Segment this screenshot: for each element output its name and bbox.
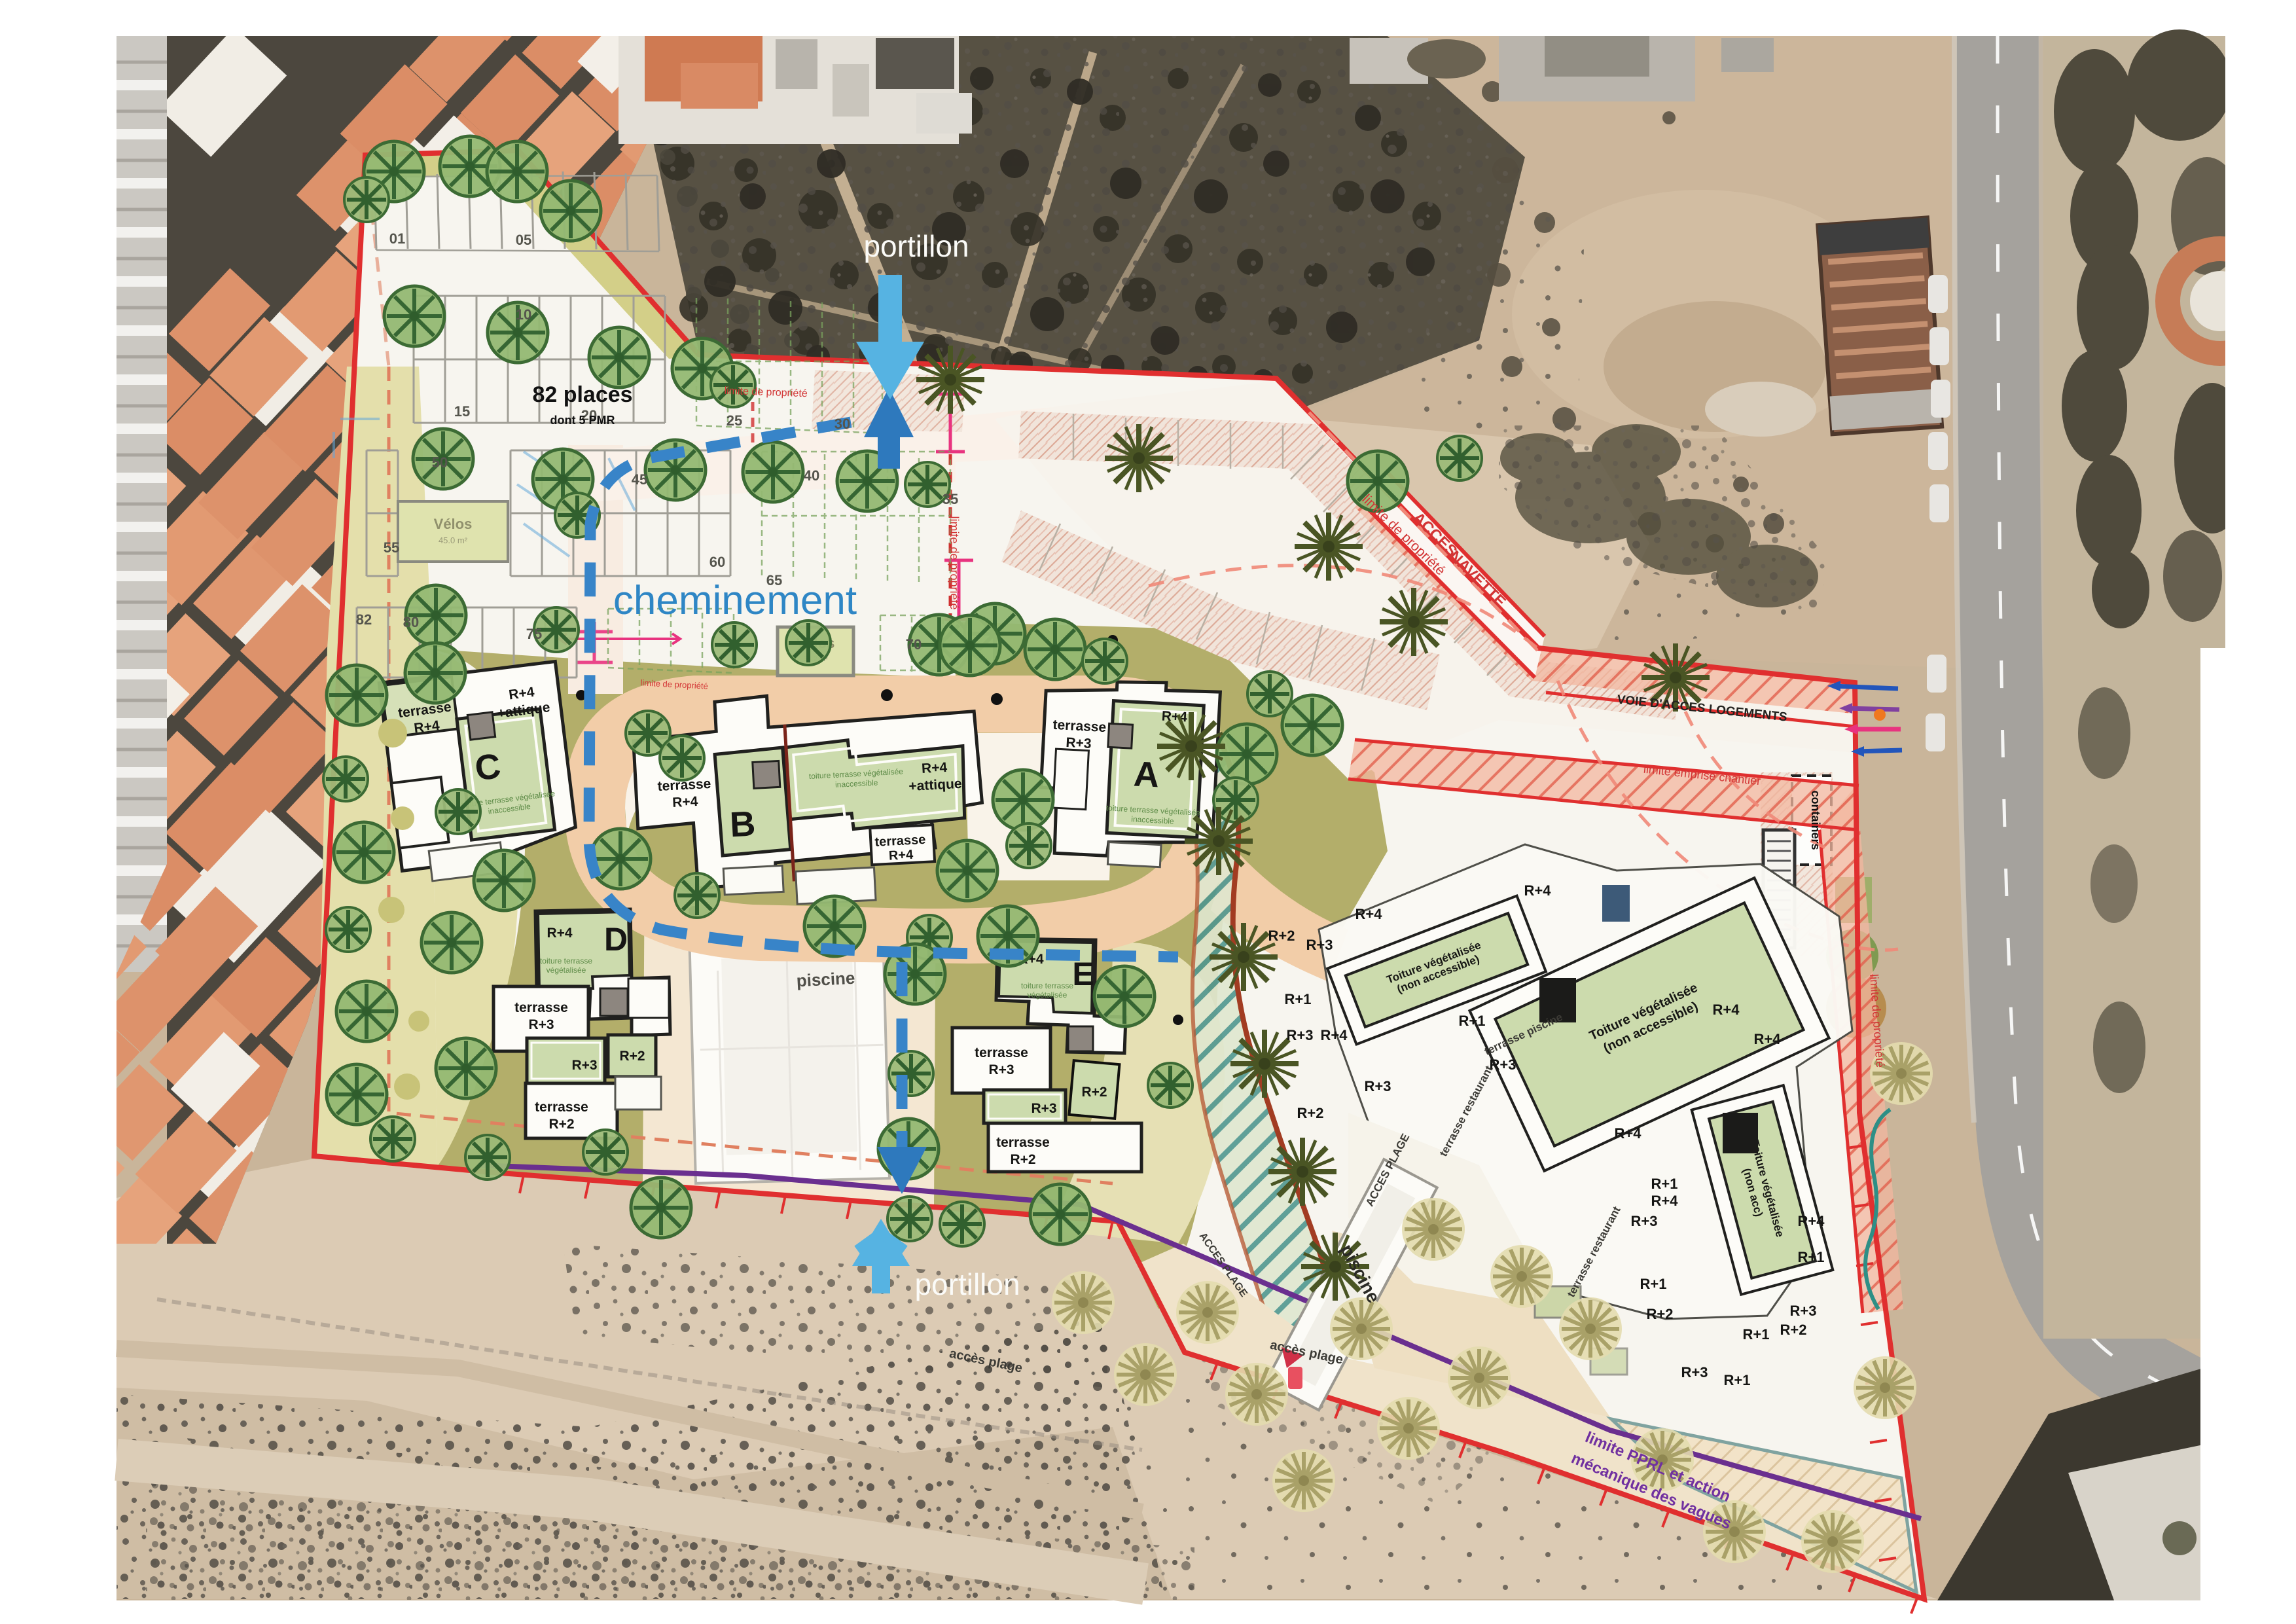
svg-text:10: 10 xyxy=(516,306,531,323)
svg-text:45: 45 xyxy=(632,471,647,488)
svg-text:piscine: piscine xyxy=(796,968,855,991)
svg-text:R+2: R+2 xyxy=(1780,1322,1807,1338)
svg-text:R+3: R+3 xyxy=(1790,1303,1817,1319)
svg-text:R+4: R+4 xyxy=(921,760,948,776)
svg-text:50: 50 xyxy=(432,454,448,471)
svg-text:R+4: R+4 xyxy=(672,794,699,810)
svg-text:R+2: R+2 xyxy=(1268,928,1295,944)
svg-text:terrasse: terrasse xyxy=(874,833,926,850)
svg-text:R+3: R+3 xyxy=(988,1062,1014,1077)
svg-text:R+1: R+1 xyxy=(1724,1372,1751,1388)
svg-text:05: 05 xyxy=(516,232,531,248)
svg-text:R+4: R+4 xyxy=(1524,882,1552,899)
svg-text:80: 80 xyxy=(403,614,419,630)
svg-text:82: 82 xyxy=(356,611,372,628)
svg-text:R+3: R+3 xyxy=(1681,1364,1708,1380)
svg-text:limite de propriété: limite de propriété xyxy=(948,516,961,609)
svg-text:Vélos: Vélos xyxy=(434,516,473,532)
svg-text:30: 30 xyxy=(834,416,850,432)
svg-text:terrasse: terrasse xyxy=(975,1045,1028,1060)
svg-text:C: C xyxy=(473,746,503,788)
svg-text:R+1: R+1 xyxy=(1285,991,1312,1007)
svg-text:R+3: R+3 xyxy=(1031,1101,1056,1116)
svg-text:R+3: R+3 xyxy=(1066,735,1092,751)
svg-text:R+4: R+4 xyxy=(413,718,440,736)
svg-text:A: A xyxy=(1133,754,1160,795)
svg-text:R+1: R+1 xyxy=(1743,1326,1770,1343)
svg-text:R+1: R+1 xyxy=(1459,1013,1486,1029)
svg-text:toiture terrasse: toiture terrasse xyxy=(540,956,592,965)
svg-text:D: D xyxy=(604,921,628,958)
svg-text:R+3: R+3 xyxy=(571,1058,597,1073)
svg-text:R+4: R+4 xyxy=(547,926,572,941)
svg-text:R+2: R+2 xyxy=(1010,1152,1035,1167)
svg-text:75: 75 xyxy=(526,626,542,642)
svg-text:R+4: R+4 xyxy=(1161,709,1188,725)
svg-text:terrasse: terrasse xyxy=(535,1100,588,1115)
svg-text:R+4: R+4 xyxy=(888,848,914,863)
svg-text:40: 40 xyxy=(804,467,819,484)
svg-text:B: B xyxy=(729,804,757,844)
svg-text:R+4: R+4 xyxy=(1798,1213,1825,1229)
svg-text:E: E xyxy=(1072,956,1094,992)
svg-text:R+4: R+4 xyxy=(1355,906,1383,922)
svg-text:70: 70 xyxy=(906,636,922,653)
svg-text:dont 5 PMR: dont 5 PMR xyxy=(550,414,615,427)
svg-text:R+4: R+4 xyxy=(1651,1193,1679,1209)
svg-text:55: 55 xyxy=(384,539,399,556)
svg-text:60: 60 xyxy=(709,554,725,570)
svg-text:containers: containers xyxy=(1809,790,1822,850)
svg-text:R+1: R+1 xyxy=(1651,1176,1678,1192)
svg-text:portillon: portillon xyxy=(914,1267,1020,1301)
svg-text:portillon: portillon xyxy=(863,229,969,263)
svg-text:R+3: R+3 xyxy=(528,1017,554,1032)
svg-text:terrasse: terrasse xyxy=(514,1000,568,1015)
svg-text:terrasse: terrasse xyxy=(1052,717,1107,735)
svg-text:R+3: R+3 xyxy=(1306,937,1333,953)
svg-text:R+4: R+4 xyxy=(1615,1125,1642,1142)
svg-text:+attique: +attique xyxy=(908,776,962,794)
svg-text:toiture terrasse: toiture terrasse xyxy=(1021,981,1073,990)
svg-text:terrasse: terrasse xyxy=(996,1135,1050,1150)
svg-text:R+1: R+1 xyxy=(1798,1249,1825,1265)
svg-text:R+1: R+1 xyxy=(1640,1276,1667,1292)
svg-text:cheminement: cheminement xyxy=(613,578,857,623)
svg-text:végétalisée: végétalisée xyxy=(1028,990,1067,1000)
svg-text:R+2: R+2 xyxy=(1647,1306,1674,1322)
svg-text:R+2: R+2 xyxy=(1081,1085,1107,1100)
svg-text:35: 35 xyxy=(942,491,958,507)
svg-text:15: 15 xyxy=(454,403,470,420)
svg-text:R+4: R+4 xyxy=(1713,1001,1740,1018)
svg-text:végétalisée: végétalisée xyxy=(547,965,586,975)
svg-text:25: 25 xyxy=(726,412,742,429)
svg-text:R+4: R+4 xyxy=(1321,1027,1348,1043)
svg-text:01: 01 xyxy=(389,230,405,247)
svg-text:R+3: R+3 xyxy=(1287,1027,1314,1043)
svg-text:R+4: R+4 xyxy=(508,685,535,703)
svg-text:45.0 m²: 45.0 m² xyxy=(439,535,468,545)
svg-text:R+3: R+3 xyxy=(1365,1078,1391,1094)
svg-text:R+2: R+2 xyxy=(1297,1105,1324,1121)
svg-text:R+2: R+2 xyxy=(619,1049,645,1064)
svg-text:R+4: R+4 xyxy=(1754,1031,1782,1047)
svg-text:R+3: R+3 xyxy=(1631,1213,1658,1229)
svg-text:82 places: 82 places xyxy=(532,382,632,407)
svg-text:R+2: R+2 xyxy=(548,1117,574,1132)
